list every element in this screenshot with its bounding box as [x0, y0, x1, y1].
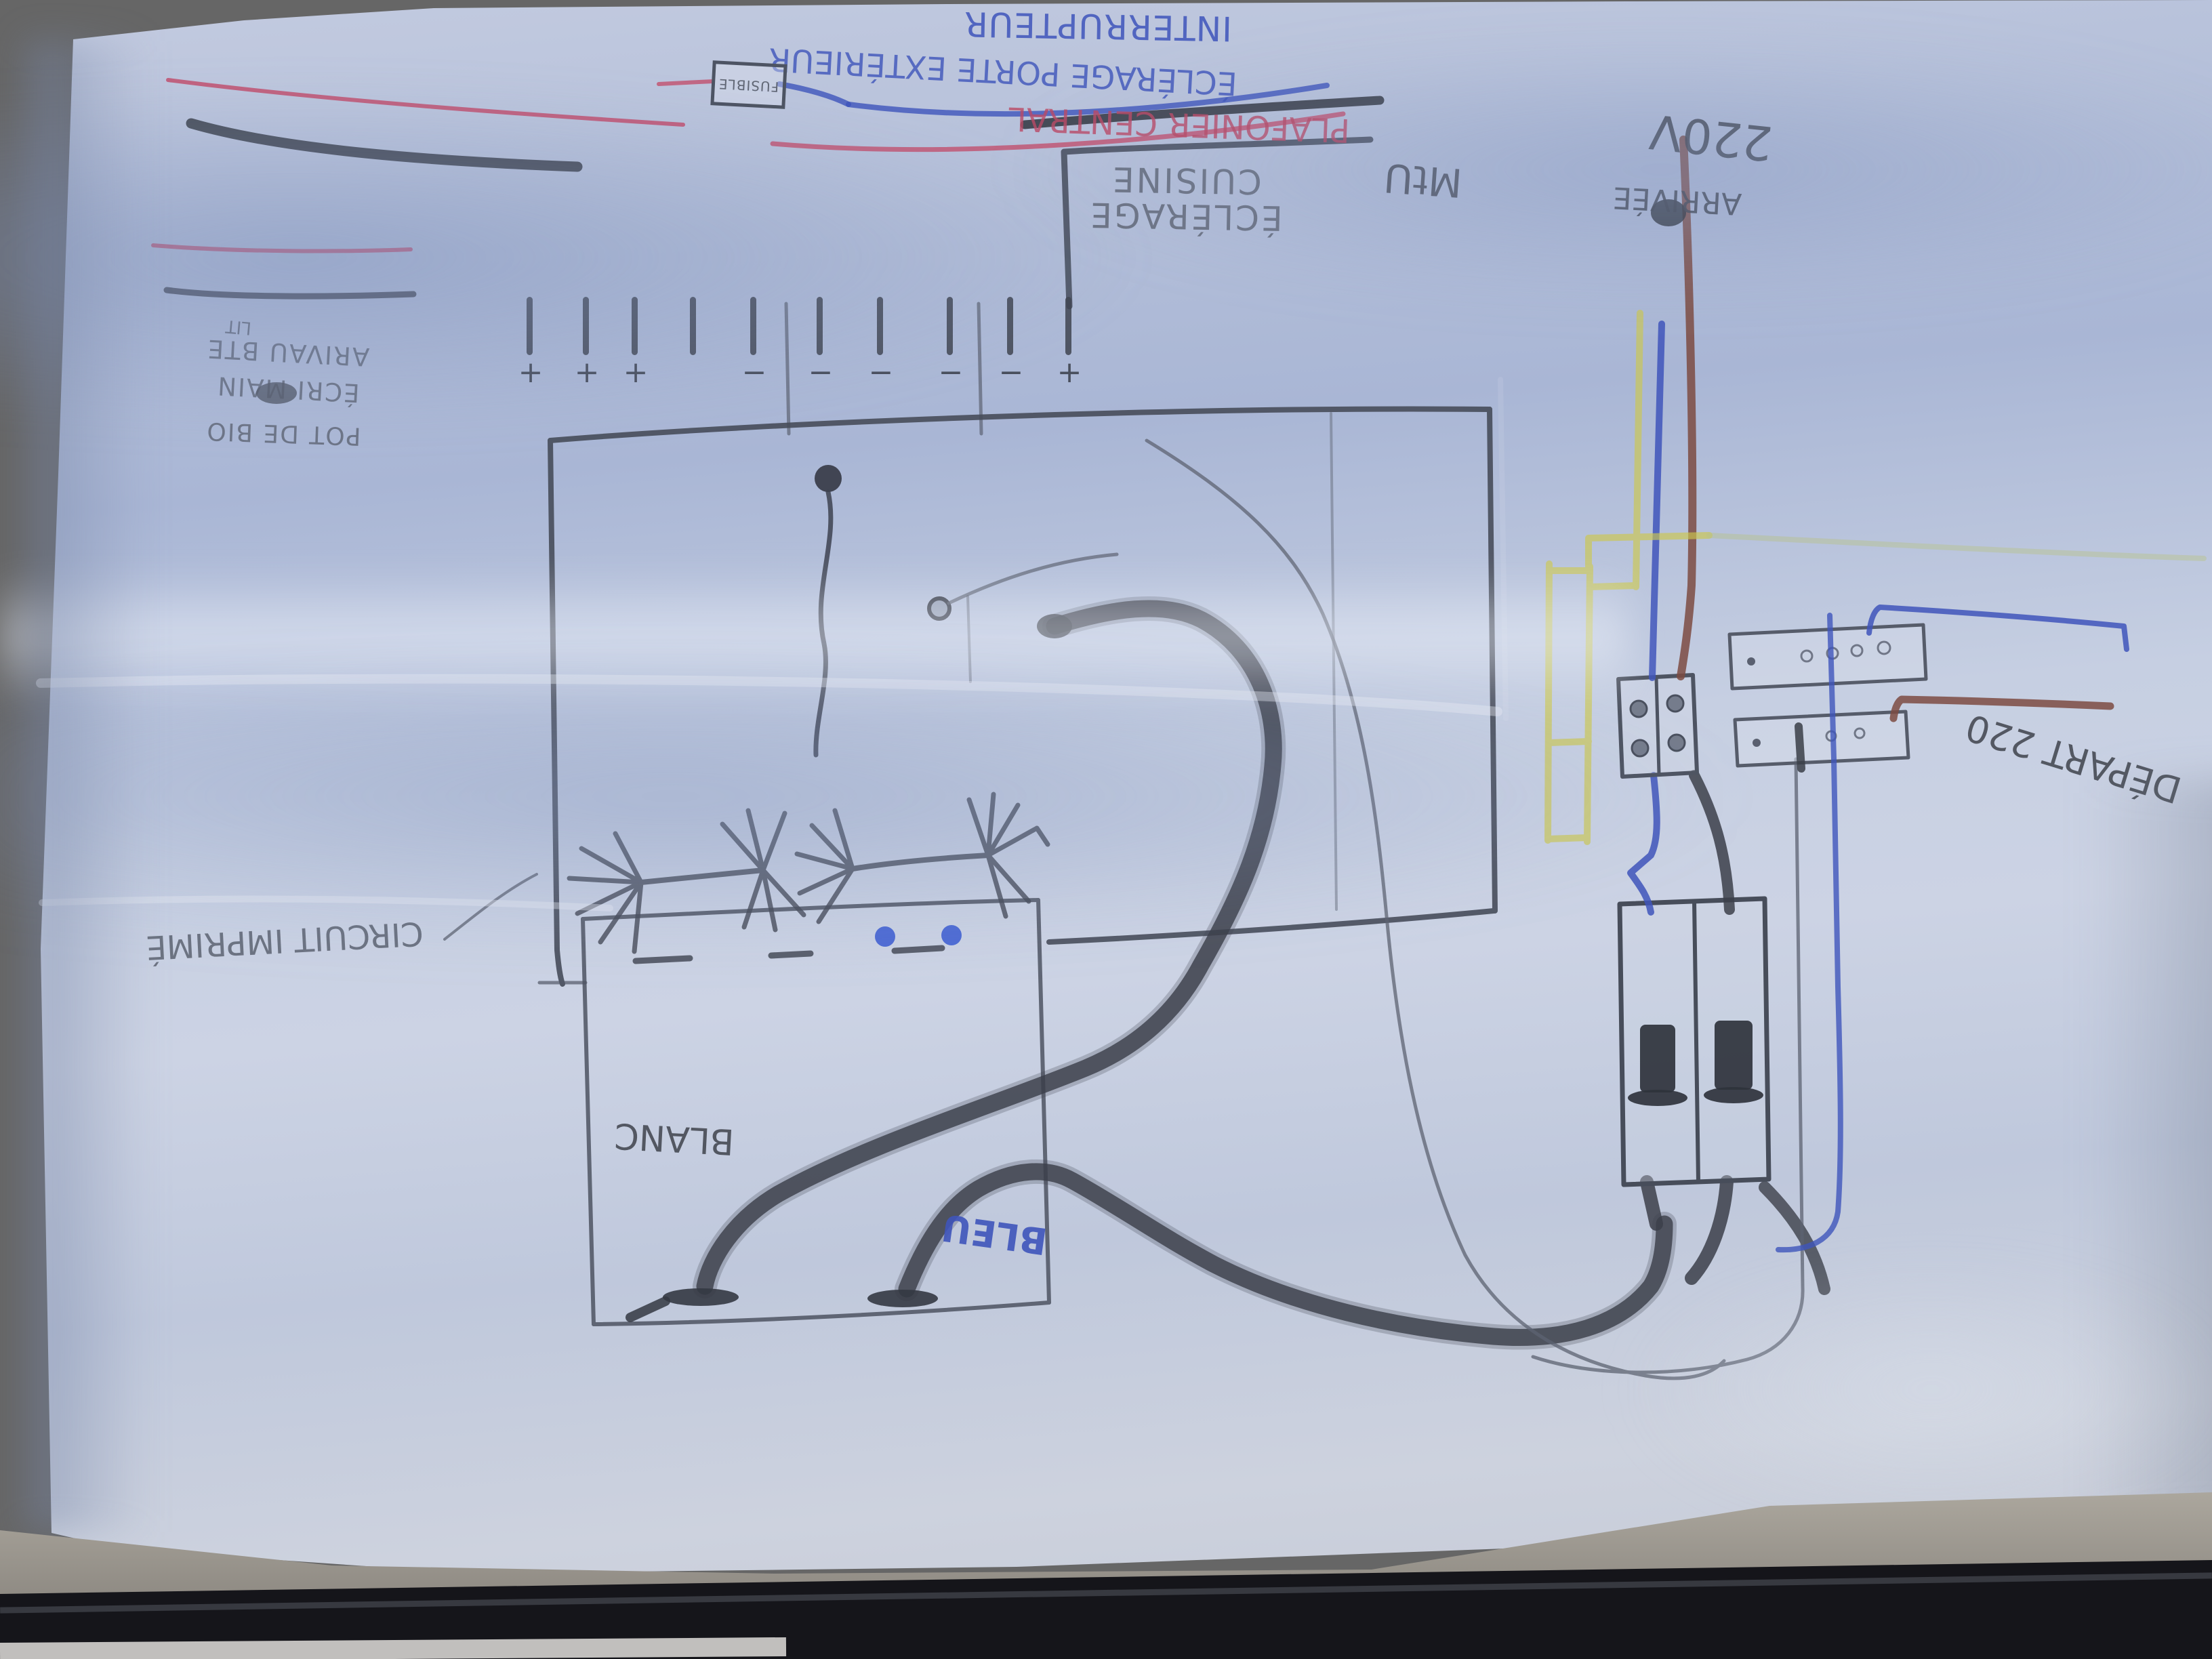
blue-lead	[779, 84, 848, 104]
tick-sign: +	[517, 355, 544, 390]
paper-creases	[41, 380, 1506, 908]
bleu-terminal	[867, 1290, 938, 1307]
tick-sign: +	[1056, 355, 1083, 390]
tick-sign: +	[573, 355, 600, 390]
label-eclairage-cuisine: ÉCLÉRAGE CUISINE	[1077, 161, 1295, 236]
tick-sign: −	[867, 355, 895, 390]
breaker-toggle-1	[1640, 1025, 1675, 1092]
tick-6: −	[807, 291, 834, 400]
strip-2	[1735, 712, 1908, 766]
thick-stub-right	[1765, 1187, 1824, 1289]
label-voltage-220v: 220V	[1638, 104, 1785, 169]
tick-sign: −	[741, 355, 768, 390]
tick-10: +	[1056, 291, 1083, 400]
red-line-top	[168, 80, 683, 125]
tick-7: −	[867, 291, 895, 400]
cuisine-line-2: CUISINE	[1078, 161, 1295, 200]
wiring-sketch	[0, 0, 2212, 1659]
breaker-toggle-2	[1715, 1021, 1753, 1090]
green-line	[1709, 535, 2204, 558]
label-fusible: FUSIBLE	[718, 76, 779, 94]
correction-blots	[256, 199, 1686, 404]
label-interrupteur: INTERRUPTEUR	[962, 6, 1234, 46]
breaker-pair-sketch	[1620, 775, 1769, 1185]
black-line-2	[167, 290, 413, 296]
label-arrivee: ARRIVÉE	[1599, 180, 1756, 220]
tick-sign: −	[807, 355, 834, 390]
thin-pencil-arcs	[445, 441, 1803, 1378]
tick-4	[680, 291, 708, 400]
photo-scene: INTERRUPTEUR ÉCLÉRAGE PORTE EXTÉRIEUR PL…	[0, 0, 2212, 1659]
small-node-circle	[929, 598, 949, 619]
black-feed	[1694, 775, 1729, 909]
tick-1: +	[517, 291, 544, 400]
tick-sign: −	[937, 355, 964, 390]
blue-zigzag-feed	[1631, 775, 1657, 912]
tick-sign: −	[998, 355, 1025, 390]
spark-bursts	[569, 794, 1048, 951]
depart-blue-vertical	[1778, 615, 1841, 1250]
blue-dots	[875, 925, 962, 947]
cuisine-line-1: ÉCLÉRAGE	[1077, 197, 1294, 236]
blanc-terminal	[663, 1288, 739, 1306]
tick-2: +	[573, 291, 600, 400]
note-line-3: POT DE BIO	[190, 417, 375, 449]
tick-sign: +	[622, 355, 649, 390]
tick-9: −	[998, 291, 1025, 400]
label-blanc: BLANC	[602, 1116, 747, 1161]
marker-lines-top-left	[153, 80, 683, 296]
tick-5: −	[741, 291, 768, 400]
label-annotation-unclear: MtU	[1374, 156, 1472, 204]
red-line-2	[153, 245, 411, 251]
arrivee-blue-wire	[1652, 324, 1662, 678]
tick-8: −	[937, 291, 964, 400]
black-line-top	[191, 123, 577, 167]
red-lead	[659, 81, 713, 84]
breaker-stub-1	[1647, 1182, 1656, 1224]
tick-3: +	[622, 291, 649, 400]
thin-node-line	[949, 554, 1117, 603]
screw-terminal-block	[1618, 140, 1697, 777]
fusible-box: FUSIBLE	[710, 60, 787, 109]
depart-terminal-strips	[1729, 607, 2127, 1250]
inner-box-dashes	[636, 948, 942, 961]
breaker-stub-2	[1692, 1182, 1727, 1278]
